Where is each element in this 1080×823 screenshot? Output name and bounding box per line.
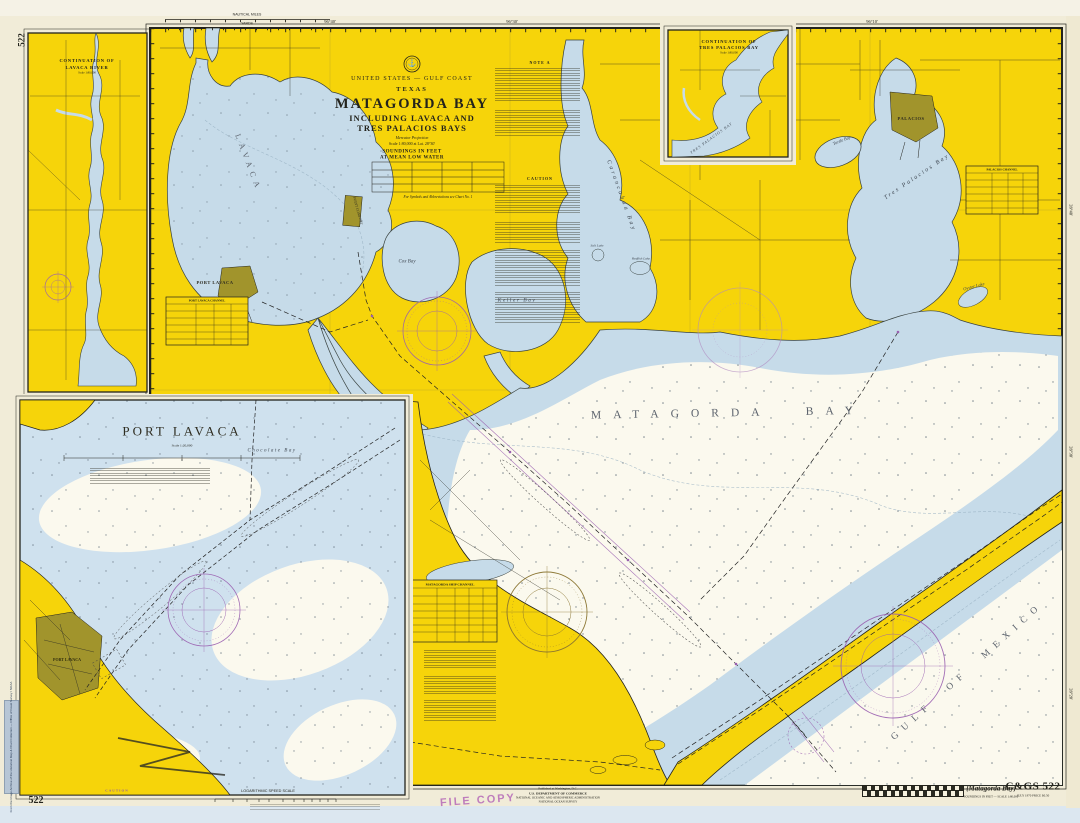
salt-lake-label: Salt Lake <box>590 244 603 248</box>
graticule-top-2: 96°30' <box>506 20 518 25</box>
note-a-text <box>495 68 580 102</box>
regulations-note <box>495 250 580 286</box>
projection-note: Mercator Projection <box>396 136 429 140</box>
bar-scale-bottom-row <box>862 790 964 797</box>
ship-channel-table-title: MATAGORDA SHIP CHANNEL <box>426 583 475 586</box>
graticule-top-1: 96°40' <box>324 20 336 25</box>
keller-bay-label: Keller Bay <box>498 298 537 304</box>
port-lavaca-inset-town-label: PORT LAVACA <box>53 658 81 662</box>
chart-number-sub: JULY 1970 PRICE $0.50 <box>1017 794 1049 797</box>
chart-subtitle-1: INCLUDING LAVACA AND <box>349 114 475 123</box>
chart-sheet: ⚓ UNITED STATES — GULF COAST TEXAS MATAG… <box>0 0 1080 823</box>
title-region: UNITED STATES — GULF COAST <box>351 76 473 82</box>
tres-palacios-inset-title: CONTINUATION OF <box>701 39 756 44</box>
caution-heading: CAUTION <box>527 177 553 181</box>
scale-note: Scale 1:80,000 at Lat. 28°30' <box>389 142 435 146</box>
caution-text <box>495 185 580 215</box>
port-lavaca-town-label: PORT LAVACA <box>197 281 234 286</box>
bottom-caution-title: CAUTION <box>105 789 129 793</box>
corner-number-top: 522 <box>18 33 27 47</box>
land-note-2 <box>424 676 496 694</box>
graticule-right-1: 28°40' <box>1068 204 1073 216</box>
tres-palacios-inset-scale: Scale 1:80,000 <box>720 51 738 54</box>
symbols-note: For Symbols and Abbreviations see Chart … <box>404 196 473 200</box>
redfish-lake-label: Redfish Lake <box>632 257 650 261</box>
speed-scale-label: LOGARITHMIC SPEED SCALE <box>241 790 295 794</box>
port-lavaca-channel-table-title: PORT LAVACA CHANNEL <box>189 299 226 302</box>
palacios-channel-table-title: PALACIOS CHANNEL <box>986 168 1017 171</box>
land-note-3 <box>424 700 496 722</box>
chart-title: MATAGORDA BAY <box>335 97 489 112</box>
scale-miles-label: NAUTICAL MILES <box>233 13 262 17</box>
note-a-heading: NOTE A <box>529 61 550 65</box>
lavaca-river-inset-scale: Scale 1:80,000 <box>78 72 96 75</box>
speed-scale-note-lines <box>250 804 380 810</box>
anchorage-note <box>495 222 580 244</box>
lavaca-river-inset-title2: LAVACA RIVER <box>65 65 108 70</box>
noaa-seal-icon: ⚓ <box>408 61 417 68</box>
port-lavaca-inset-scale: Scale 1:20,000 <box>172 444 193 448</box>
lavaca-river-inset-title: CONTINUATION OF <box>59 59 114 64</box>
palacios-town-label: PALACIOS <box>898 117 925 122</box>
bracket-subtitle: SOUNDINGS IN FEET — SCALE 1:80,000 <box>964 795 1018 798</box>
cox-bay-label: Cox Bay <box>398 260 415 265</box>
graticule-top-3: 96°10' <box>866 20 878 25</box>
port-lavaca-inset-title: PORT LAVACA <box>122 425 241 438</box>
soundings-note: SOUNDINGS IN FEET <box>382 150 441 155</box>
land-note-1 <box>424 650 496 670</box>
publisher-line-4: NATIONAL OCEAN SURVEY <box>539 801 578 804</box>
chart-number: C&GS 522 <box>1005 782 1060 793</box>
graticule-right-3: 28°20' <box>1068 688 1073 700</box>
graticule-right-2: 28°30' <box>1068 446 1073 458</box>
archive-sticker-text: From the Image Archive of the Historical… <box>9 682 13 813</box>
title-state: TEXAS <box>396 87 428 94</box>
chocolate-bay-label: Chocolate Bay <box>247 449 296 454</box>
corner-number-bottom: 522 <box>29 796 44 806</box>
scale-yards-label: YARDS <box>241 22 253 26</box>
datum-note: AT MEAN LOW WATER <box>380 156 444 161</box>
archive-sticker: From the Image Archive of the Historical… <box>4 700 19 794</box>
note-b-text <box>495 110 580 136</box>
chart-subtitle-2: TRES PALACIOS BAYS <box>357 124 467 133</box>
inset-note <box>90 468 210 484</box>
